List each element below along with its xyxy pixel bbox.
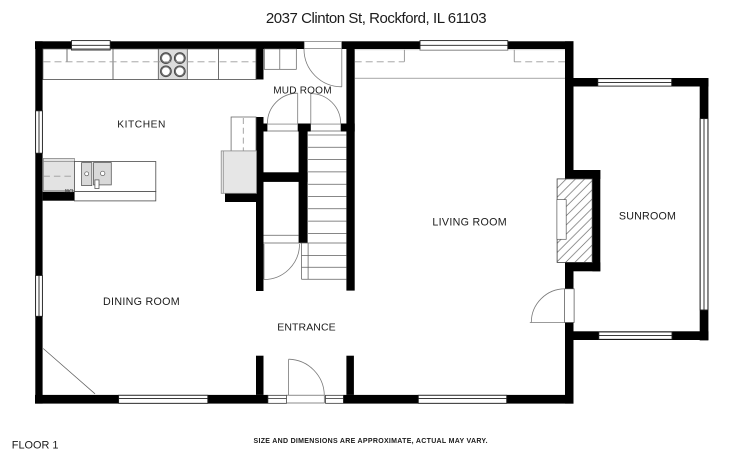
svg-text:DINING ROOM: DINING ROOM (103, 296, 180, 308)
svg-text:2037 Clinton St, Rockford, IL: 2037 Clinton St, Rockford, IL 61103 (266, 10, 486, 27)
svg-text:SUNROOM: SUNROOM (619, 211, 676, 223)
svg-text:FLOOR 1: FLOOR 1 (12, 440, 59, 452)
svg-text:DW: DW (64, 187, 73, 193)
svg-text:ENTRANCE: ENTRANCE (277, 321, 336, 333)
svg-text:SIZE AND DIMENSIONS ARE APPROX: SIZE AND DIMENSIONS ARE APPROXIMATE, ACT… (254, 438, 488, 445)
svg-text:LIVING ROOM: LIVING ROOM (432, 217, 507, 229)
svg-text:MUD ROOM: MUD ROOM (273, 85, 332, 96)
svg-text:KITCHEN: KITCHEN (117, 119, 166, 130)
